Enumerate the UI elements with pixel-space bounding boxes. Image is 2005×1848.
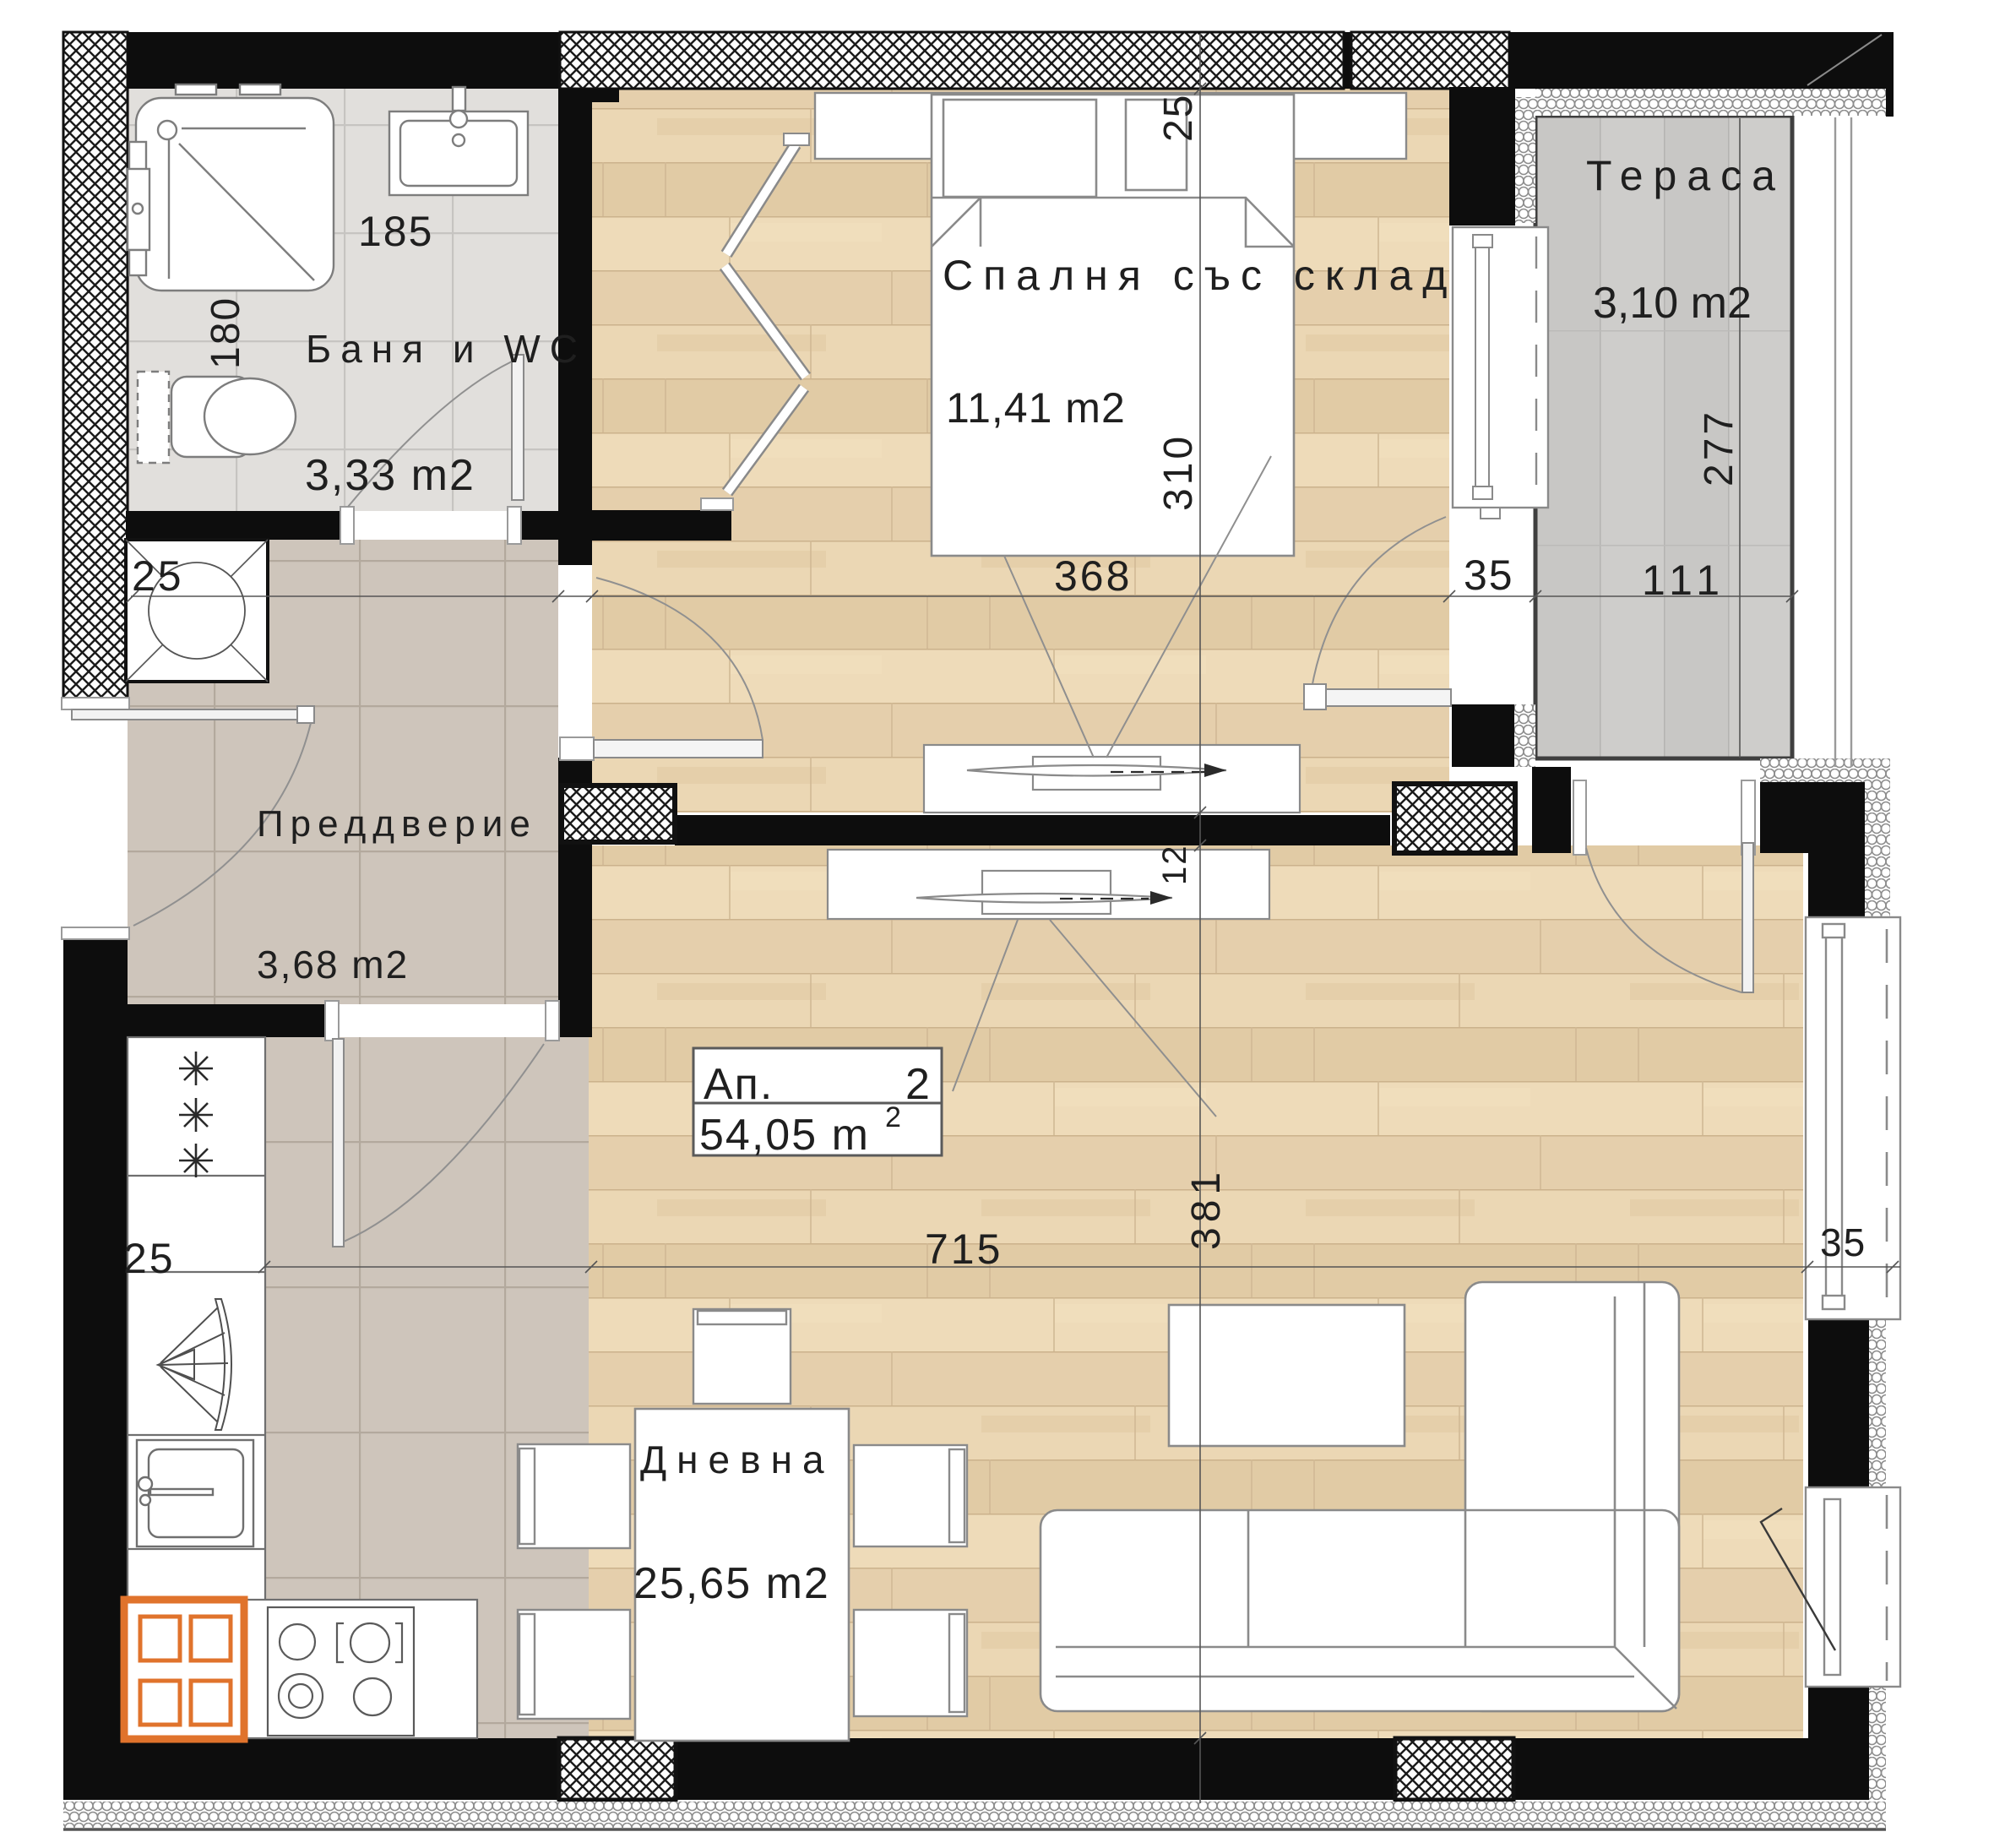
svg-text:Спалня със склад: Спалня със склад xyxy=(943,252,1457,299)
svg-text:277: 277 xyxy=(1697,409,1741,486)
svg-text:25: 25 xyxy=(1156,94,1201,142)
svg-text:3,10 m2: 3,10 m2 xyxy=(1593,279,1752,328)
svg-text:2: 2 xyxy=(885,1101,901,1133)
svg-text:54,05 m: 54,05 m xyxy=(699,1111,870,1160)
svg-text:381: 381 xyxy=(1184,1167,1229,1250)
svg-text:35: 35 xyxy=(1464,552,1514,599)
svg-text:12: 12 xyxy=(1156,845,1193,886)
svg-text:25: 25 xyxy=(123,1235,176,1282)
svg-text:715: 715 xyxy=(925,1226,1002,1273)
svg-text:11,41 m2: 11,41 m2 xyxy=(946,384,1126,432)
svg-text:185: 185 xyxy=(358,208,433,255)
svg-text:35: 35 xyxy=(1820,1220,1866,1264)
svg-text:Тераса: Тераса xyxy=(1586,152,1785,199)
svg-text:2: 2 xyxy=(905,1060,930,1109)
svg-text:Дневна: Дневна xyxy=(640,1438,834,1481)
svg-text:111: 111 xyxy=(1642,557,1726,604)
svg-text:25: 25 xyxy=(132,552,184,600)
svg-text:180: 180 xyxy=(204,296,248,369)
svg-text:3,68 m2: 3,68 m2 xyxy=(257,943,409,987)
svg-text:368: 368 xyxy=(1054,552,1132,600)
svg-text:310: 310 xyxy=(1156,433,1201,511)
svg-text:25,65 m2: 25,65 m2 xyxy=(633,1559,830,1608)
svg-text:Баня и WC: Баня и WC xyxy=(306,327,587,371)
svg-text:Ап.: Ап. xyxy=(704,1060,774,1109)
svg-text:Преддверие: Преддверие xyxy=(257,803,537,845)
svg-text:3,33 m2: 3,33 m2 xyxy=(305,451,475,500)
